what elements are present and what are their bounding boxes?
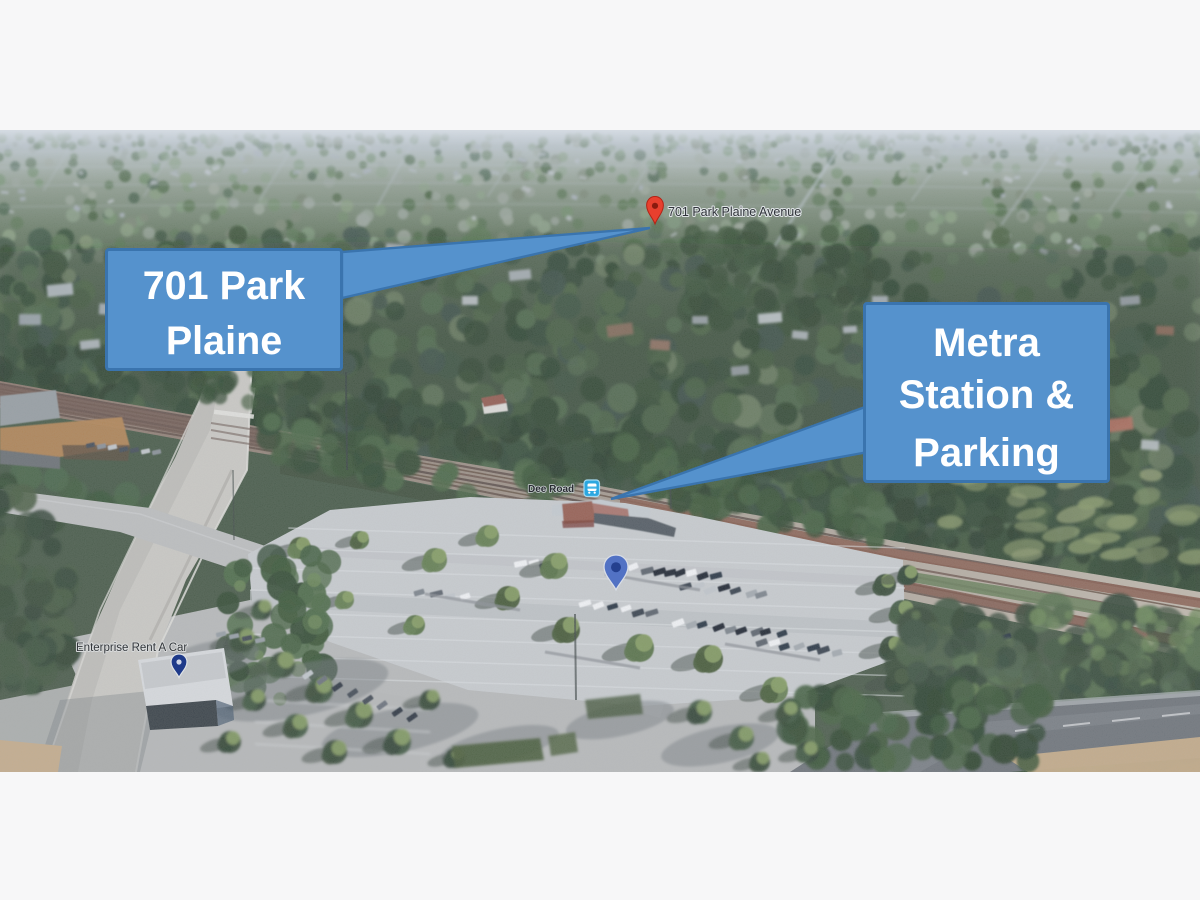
svg-text:Dee Road: Dee Road xyxy=(528,484,574,495)
svg-text:Enterprise Rent A Car: Enterprise Rent A Car xyxy=(76,642,187,654)
svg-text:701 Park Plaine Avenue: 701 Park Plaine Avenue xyxy=(668,205,801,219)
